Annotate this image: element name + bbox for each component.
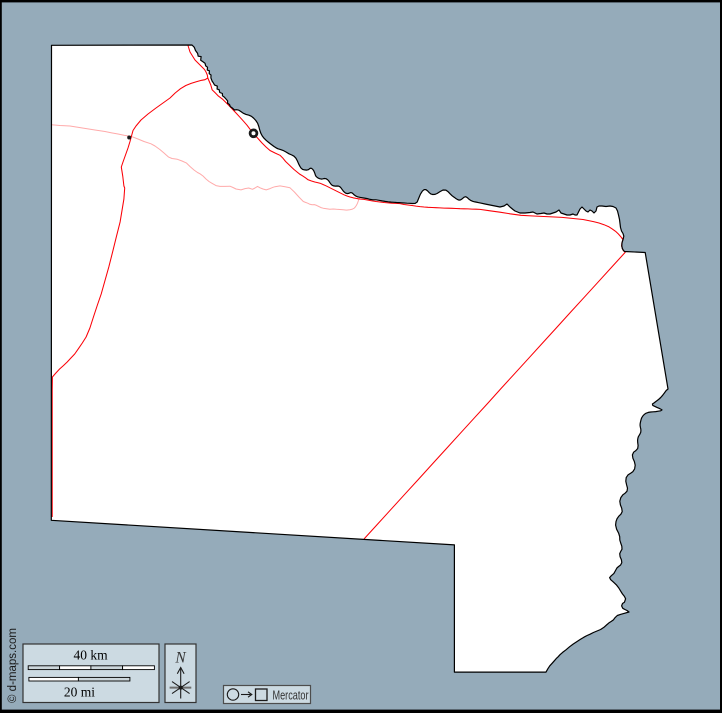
svg-text:© d-maps.com: © d-maps.com (7, 628, 19, 703)
svg-text:40 km: 40 km (74, 648, 109, 663)
svg-text:N: N (174, 650, 187, 667)
svg-text:20 mi: 20 mi (64, 684, 95, 699)
svg-text:Mercator: Mercator (273, 688, 309, 703)
